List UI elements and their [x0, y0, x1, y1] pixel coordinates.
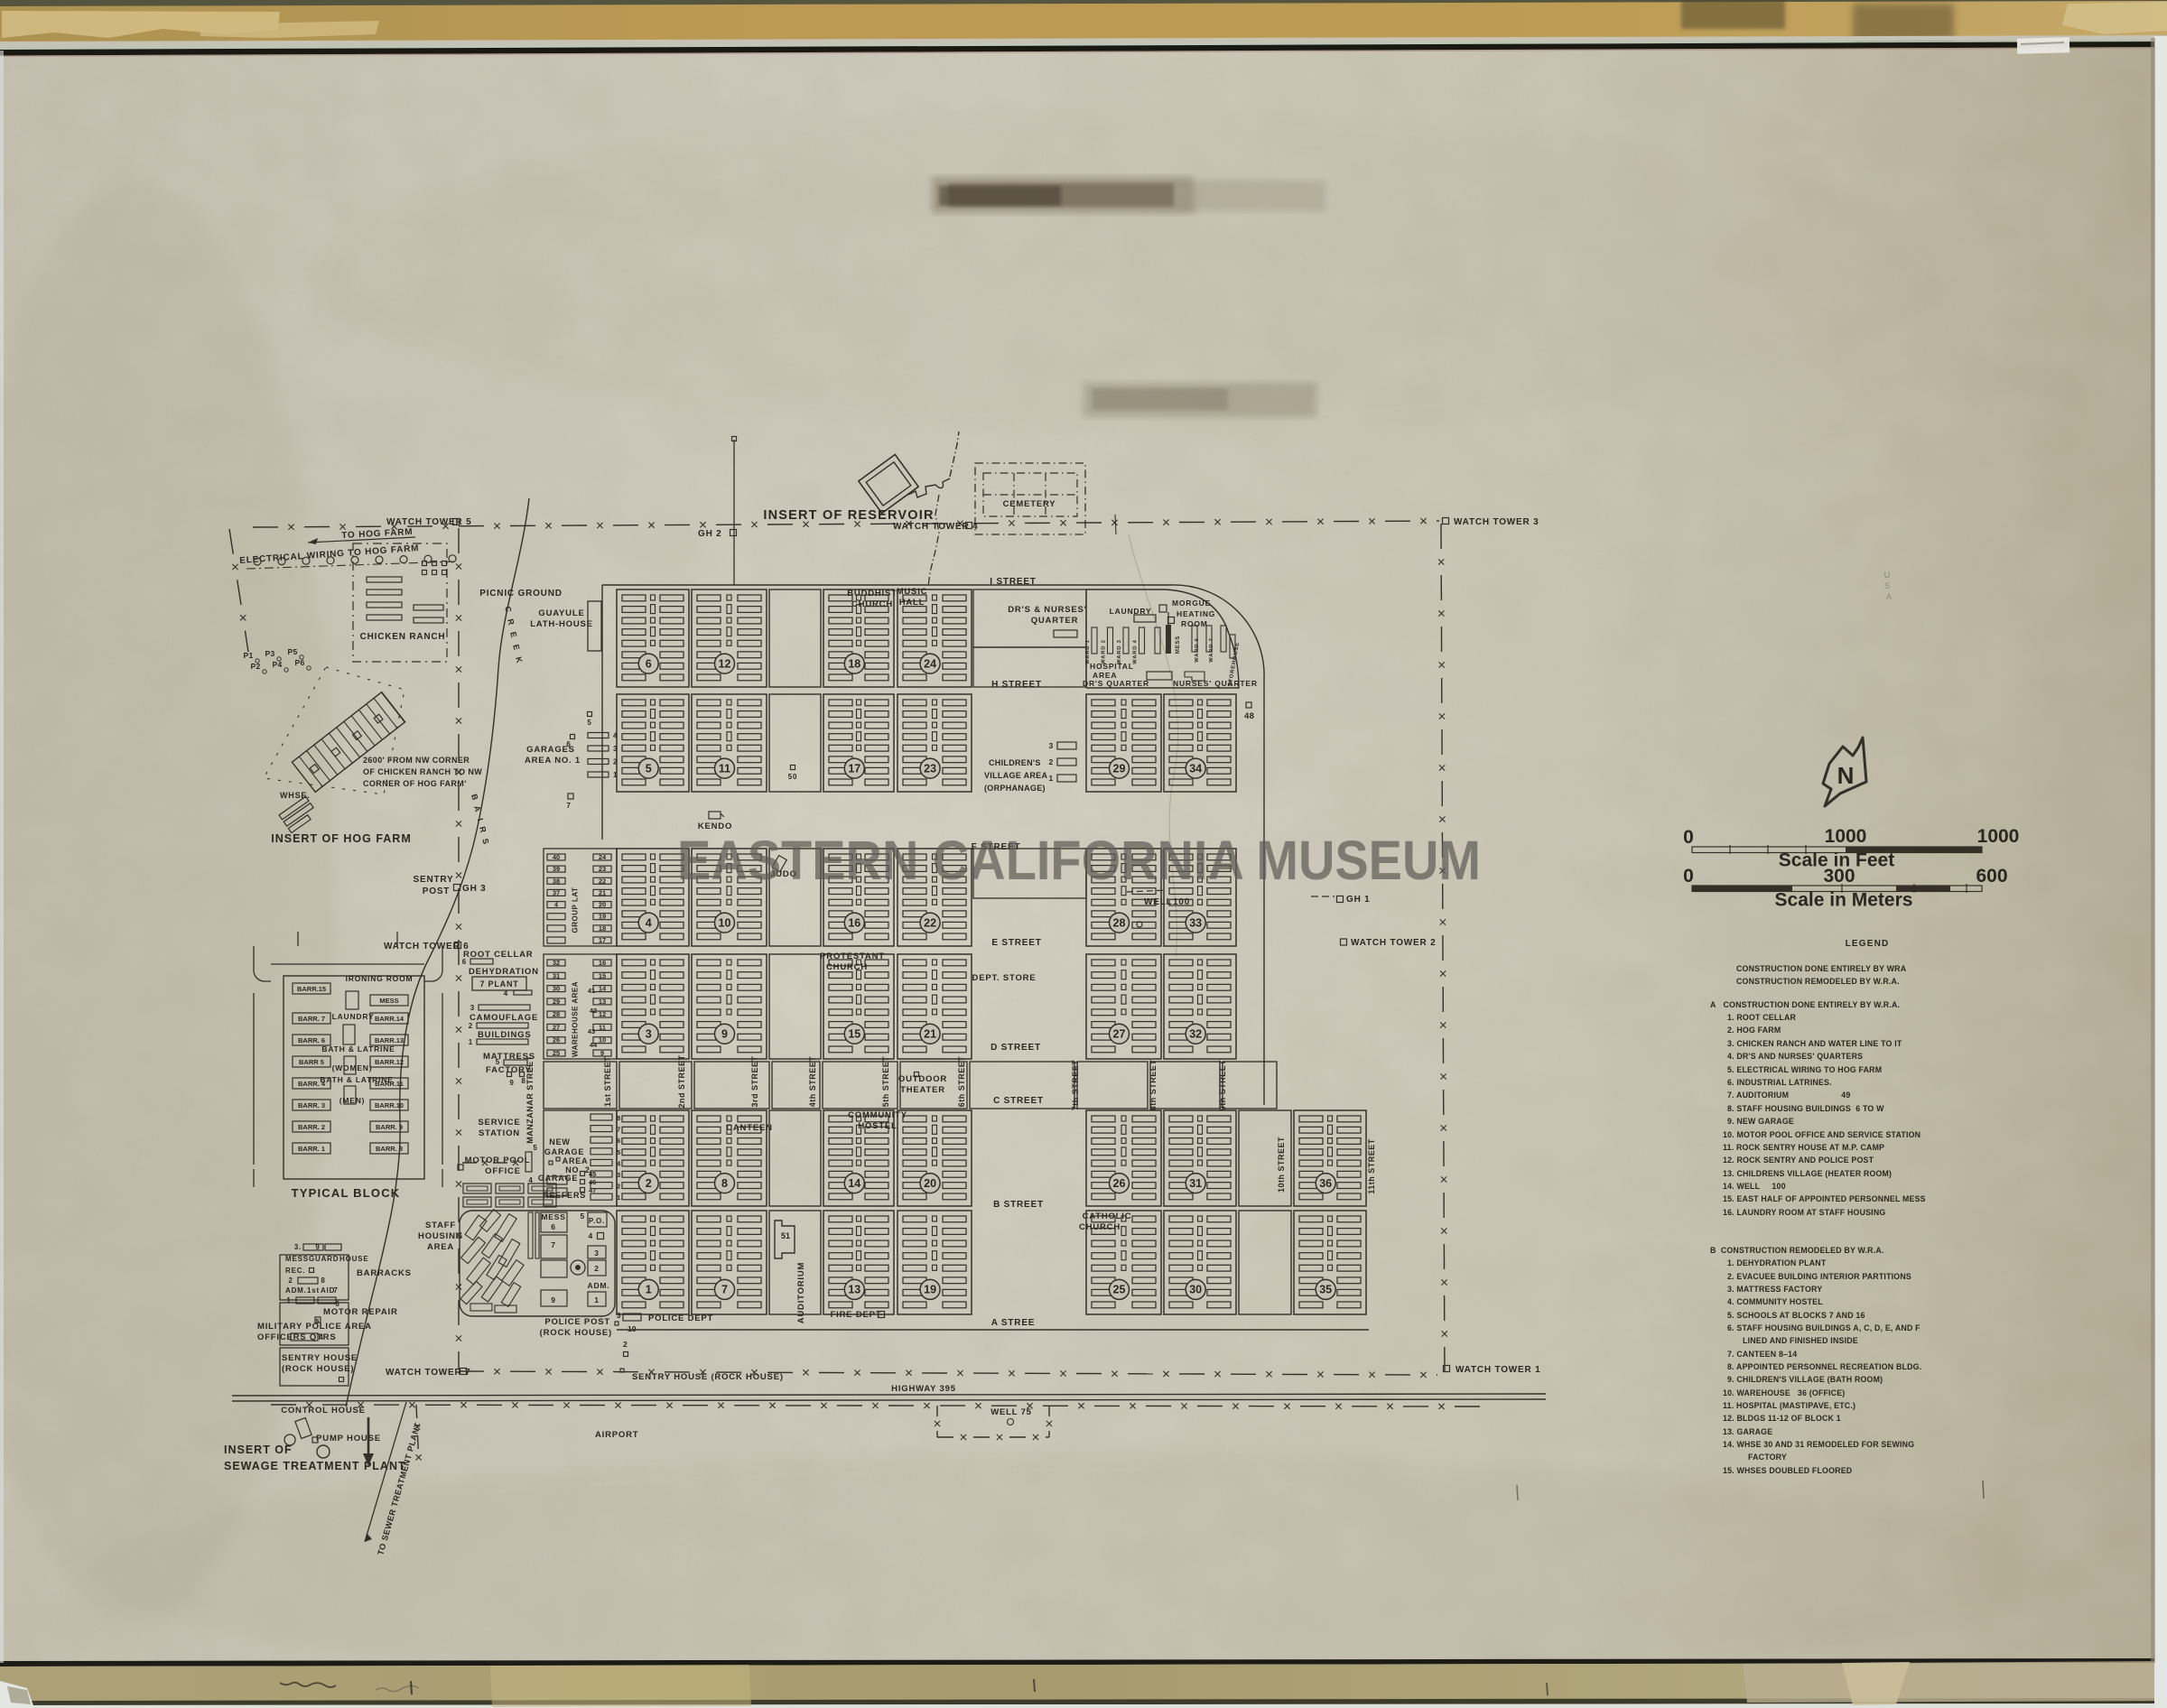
svg-text:15. EAST HALF OF APPOINTED PER: 15. EAST HALF OF APPOINTED PERSONNEL MES… — [1723, 1194, 1926, 1203]
svg-text:WATCH TOWER 6: WATCH TOWER 6 — [384, 942, 469, 951]
svg-text:HOUSE: HOUSE — [339, 1255, 368, 1263]
svg-text:WARD 1: WARD 1 — [1085, 639, 1091, 664]
svg-text:50: 50 — [788, 773, 798, 781]
svg-text:5: 5 — [580, 1211, 585, 1221]
svg-text:22: 22 — [599, 877, 606, 885]
svg-text:13: 13 — [848, 1284, 860, 1296]
svg-text:SEWAGE TREATMENT PLANT: SEWAGE TREATMENT PLANT — [224, 1460, 406, 1472]
svg-text:OF CHICKEN RANCH TO NW: OF CHICKEN RANCH TO NW — [363, 767, 482, 776]
svg-text:15. WHSES DOUBLED FLOORED: 15. WHSES DOUBLED FLOORED — [1723, 1466, 1852, 1475]
svg-text:HOUSING: HOUSING — [418, 1231, 463, 1241]
svg-text:32: 32 — [553, 959, 560, 967]
svg-text:GARAGE: GARAGE — [544, 1147, 584, 1156]
svg-text:A STREE: A STREE — [991, 1318, 1036, 1328]
svg-text:Scale in Meters: Scale in Meters — [1775, 890, 1913, 911]
svg-text:AREA NO. 1: AREA NO. 1 — [525, 756, 581, 766]
svg-text:DR'S & NURSES': DR'S & NURSES' — [1008, 605, 1087, 615]
svg-text:BARR 5: BARR 5 — [299, 1058, 324, 1066]
svg-text:12: 12 — [719, 657, 731, 670]
svg-text:7th STREET: 7th STREET — [1071, 1060, 1080, 1111]
svg-text:23: 23 — [924, 762, 936, 775]
svg-text:CHURCH: CHURCH — [826, 962, 868, 972]
svg-text:0: 0 — [1683, 866, 1694, 886]
svg-text:REEFERS: REEFERS — [543, 1191, 586, 1200]
svg-text:6. STAFF HOUSING BUILDINGS A,: 6. STAFF HOUSING BUILDINGS A, C, D, E, A… — [1727, 1323, 1921, 1332]
svg-text:CONSTRUCTION DONE ENTIRELY BY: CONSTRUCTION DONE ENTIRELY BY WRA — [1736, 964, 1907, 973]
svg-text:CHICKEN RANCH: CHICKEN RANCH — [360, 632, 446, 642]
svg-text:PROTESTANT: PROTESTANT — [820, 951, 885, 961]
svg-text:HALL: HALL — [899, 598, 925, 608]
svg-text:22: 22 — [924, 916, 936, 929]
svg-text:VILLAGE AREA: VILLAGE AREA — [984, 771, 1047, 780]
svg-text:8: 8 — [721, 1177, 728, 1190]
svg-text:P4: P4 — [273, 660, 283, 669]
svg-text:5. SCHOOLS AT BLOCKS 7 AND 16: 5. SCHOOLS AT BLOCKS 7 AND 16 — [1727, 1311, 1865, 1320]
svg-text:3.: 3. — [294, 1243, 302, 1251]
svg-text:LAUNDRY: LAUNDRY — [332, 1012, 375, 1021]
svg-text:20: 20 — [924, 1177, 936, 1190]
svg-text:WARD 4: WARD 4 — [1133, 639, 1139, 664]
svg-text:46: 46 — [589, 1178, 596, 1186]
svg-text:10: 10 — [719, 916, 731, 929]
svg-text:11th STREET: 11th STREET — [1367, 1138, 1376, 1194]
svg-text:16. LAUNDRY ROOM AT STAFF HOUS: 16. LAUNDRY ROOM AT STAFF HOUSING — [1723, 1208, 1885, 1217]
svg-text:PUMP HOUSE: PUMP HOUSE — [316, 1434, 381, 1443]
svg-text:3. MATTRESS FACTORY: 3. MATTRESS FACTORY — [1727, 1285, 1822, 1294]
svg-text:4: 4 — [319, 1333, 323, 1341]
svg-text:MORGUE: MORGUE — [1172, 599, 1211, 608]
svg-text:ADM.: ADM. — [285, 1286, 307, 1295]
svg-text:2: 2 — [623, 1340, 628, 1349]
svg-text:BUDDHIST: BUDDHIST — [847, 589, 897, 599]
svg-text:5th STREET: 5th STREET — [881, 1056, 890, 1108]
svg-text:2: 2 — [1048, 757, 1054, 766]
svg-text:E STREET: E STREET — [991, 938, 1041, 948]
svg-text:STATION: STATION — [479, 1128, 520, 1138]
svg-text:BARR. 7: BARR. 7 — [298, 1015, 325, 1023]
svg-text:1000: 1000 — [1825, 826, 1867, 847]
svg-text:1. ROOT CELLAR: 1. ROOT CELLAR — [1727, 1013, 1797, 1022]
svg-text:2: 2 — [594, 1264, 600, 1273]
svg-text:SENTRY: SENTRY — [414, 875, 454, 885]
svg-text:BARR.15: BARR.15 — [297, 985, 326, 993]
svg-text:3: 3 — [617, 1171, 620, 1179]
svg-text:1. DEHYDRATION PLANT: 1. DEHYDRATION PLANT — [1727, 1258, 1827, 1267]
svg-text:OFFICE: OFFICE — [485, 1166, 521, 1176]
svg-text:36: 36 — [1319, 1177, 1332, 1190]
svg-text:4: 4 — [504, 989, 508, 998]
svg-text:GARAGE: GARAGE — [538, 1174, 578, 1183]
svg-text:THEATER: THEATER — [900, 1085, 945, 1095]
svg-text:BARR.13: BARR.13 — [375, 1036, 404, 1044]
svg-text:TYPICAL BLOCK: TYPICAL BLOCK — [292, 1186, 401, 1200]
svg-text:7. AUDITORIUM: 7. AUDITORIUM 49 — [1727, 1091, 1850, 1100]
svg-text:BARR.10: BARR.10 — [375, 1101, 404, 1109]
svg-text:AIRPORT: AIRPORT — [595, 1430, 638, 1440]
svg-text:9: 9 — [551, 1295, 556, 1304]
svg-text:12. BLDGS 11-12 OF BLOCK 1: 12. BLDGS 11-12 OF BLOCK 1 — [1723, 1414, 1841, 1423]
svg-text:INSERT OF RESERVOIR: INSERT OF RESERVOIR — [763, 508, 934, 523]
svg-text:LINED AND FINISHED INSIDE: LINED AND FINISHED INSIDE — [1743, 1336, 1858, 1345]
svg-text:45: 45 — [589, 1170, 596, 1178]
svg-text:600: 600 — [1976, 866, 2007, 886]
svg-text:WATCH TOWER 5: WATCH TOWER 5 — [386, 517, 471, 527]
svg-text:14. WHSE 30 AND 31 REMODELED: 14. WHSE 30 AND 31 REMODELED FOR SEWING — [1723, 1440, 1914, 1449]
svg-text:9: 9 — [721, 1028, 728, 1041]
svg-text:2600' FROM NW CORNER: 2600' FROM NW CORNER — [363, 756, 470, 765]
svg-text:STAFF: STAFF — [425, 1221, 456, 1230]
svg-text:44: 44 — [590, 1041, 598, 1049]
svg-text:FACTORY: FACTORY — [1748, 1453, 1787, 1462]
svg-text:20: 20 — [599, 901, 606, 909]
svg-text:18: 18 — [599, 924, 606, 933]
svg-text:7: 7 — [333, 1286, 338, 1295]
svg-text:28: 28 — [1113, 916, 1126, 929]
svg-text:P6: P6 — [295, 658, 305, 667]
svg-text:HEATING: HEATING — [1177, 609, 1215, 618]
svg-text:LAUNDRY: LAUNDRY — [1110, 607, 1152, 616]
svg-text:19: 19 — [599, 913, 606, 921]
svg-text:25: 25 — [553, 1049, 560, 1057]
svg-text:LEGEND: LEGEND — [1846, 939, 1890, 949]
svg-text:26: 26 — [1113, 1177, 1126, 1190]
svg-text:IRONING ROOM: IRONING ROOM — [346, 974, 414, 983]
svg-text:48: 48 — [1244, 711, 1254, 721]
svg-text:51: 51 — [781, 1231, 790, 1240]
svg-text:7. CANTEEN 8–14: 7. CANTEEN 8–14 — [1727, 1350, 1797, 1359]
svg-text:18: 18 — [848, 657, 860, 670]
svg-text:D STREET: D STREET — [990, 1043, 1041, 1053]
svg-text:6: 6 — [462, 958, 467, 966]
svg-text:31: 31 — [1189, 1177, 1202, 1190]
svg-text:(ORPHANAGE): (ORPHANAGE) — [984, 784, 1046, 793]
svg-text:1: 1 — [1048, 774, 1054, 783]
svg-text:300: 300 — [1823, 866, 1855, 886]
svg-text:AUDITORIUM: AUDITORIUM — [796, 1262, 806, 1324]
svg-text:BATH & LATRINE: BATH & LATRINE — [321, 1044, 395, 1054]
svg-text:ADM.: ADM. — [588, 1281, 610, 1290]
svg-text:DR'S QUARTER: DR'S QUARTER — [1083, 679, 1149, 688]
svg-text:A: A — [1886, 592, 1892, 601]
svg-text:SENTRY HOUSE: SENTRY HOUSE — [282, 1353, 358, 1363]
svg-text:4: 4 — [588, 1231, 593, 1240]
svg-text:33: 33 — [1189, 916, 1202, 929]
svg-text:9. CHILDREN'S VILLAGE (BATH RO: 9. CHILDREN'S VILLAGE (BATH ROOM) — [1727, 1375, 1883, 1384]
svg-text:1: 1 — [594, 1295, 600, 1304]
svg-text:0: 0 — [1683, 827, 1694, 848]
svg-text:28: 28 — [553, 1010, 560, 1018]
svg-text:11. ROCK SENTRY HOUSE AT M.P.: 11. ROCK SENTRY HOUSE AT M.P. CAMP — [1723, 1143, 1884, 1152]
svg-text:B CONSTRUCTION REMODELED BY W: B CONSTRUCTION REMODELED BY W.R.A. — [1710, 1246, 1884, 1255]
svg-text:41: 41 — [588, 987, 595, 995]
svg-text:1: 1 — [617, 1193, 620, 1202]
svg-text:10. WAREHOUSE 36 (OFFICE): 10. WAREHOUSE 36 (OFFICE) — [1723, 1388, 1845, 1397]
svg-text:3: 3 — [594, 1249, 600, 1258]
svg-text:INSERT OF: INSERT OF — [224, 1443, 293, 1456]
svg-text:14. WELL 100: 14. WELL 100 — [1723, 1182, 1786, 1191]
svg-text:OUTDOOR: OUTDOOR — [898, 1074, 947, 1084]
svg-text:25: 25 — [1113, 1284, 1126, 1296]
svg-text:MOTOR REPAIR: MOTOR REPAIR — [323, 1307, 398, 1317]
svg-text:C STREET: C STREET — [993, 1096, 1044, 1106]
svg-text:BATH & LATRINE: BATH & LATRINE — [320, 1075, 393, 1084]
svg-text:2: 2 — [288, 1276, 293, 1285]
svg-text:29: 29 — [553, 998, 560, 1006]
svg-text:CHURCH: CHURCH — [1079, 1222, 1121, 1232]
svg-text:HOSPITAL: HOSPITAL — [1090, 662, 1134, 671]
svg-text:POLICE POST: POLICE POST — [544, 1317, 610, 1327]
svg-text:WATCH TOWER 4: WATCH TOWER 4 — [893, 522, 978, 532]
svg-text:P3: P3 — [265, 649, 275, 658]
svg-text:4. DR'S AND NURSES' QUARTERS: 4. DR'S AND NURSES' QUARTERS — [1727, 1052, 1863, 1061]
svg-text:AREA: AREA — [427, 1242, 454, 1252]
svg-text:8th STREET: 8th STREET — [1149, 1060, 1158, 1111]
svg-text:REC.: REC. — [285, 1267, 305, 1275]
svg-text:14: 14 — [599, 985, 607, 993]
svg-text:42: 42 — [590, 1007, 597, 1015]
svg-text:47: 47 — [589, 1186, 596, 1194]
svg-text:A CONSTRUCTION DONE ENTIRELY: A CONSTRUCTION DONE ENTIRELY BY W.R.A. — [1710, 1000, 1900, 1009]
svg-text:GH 1: GH 1 — [1346, 895, 1371, 905]
svg-text:WHSE.: WHSE. — [280, 791, 311, 800]
svg-text:8. APPOINTED PERSONNEL RECREAT: 8. APPOINTED PERSONNEL RECREATION BLDG. — [1727, 1362, 1921, 1371]
svg-text:4th STREET: 4th STREET — [808, 1056, 817, 1108]
svg-text:7 PLANT: 7 PLANT — [479, 979, 518, 989]
svg-text:6: 6 — [646, 657, 652, 670]
svg-text:DEHYDRATION: DEHYDRATION — [469, 967, 539, 977]
svg-text:WATCH TOWER 2: WATCH TOWER 2 — [1351, 938, 1436, 948]
svg-text:10. MOTOR POOL OFFICE AND SERV: 10. MOTOR POOL OFFICE AND SERVICE STATIO… — [1723, 1130, 1921, 1139]
svg-text:ROOT CELLAR: ROOT CELLAR — [463, 950, 533, 960]
svg-text:CEMETERY: CEMETERY — [1003, 499, 1056, 509]
svg-text:GH 3: GH 3 — [462, 884, 487, 894]
svg-text:GH 2: GH 2 — [698, 529, 722, 539]
svg-text:S: S — [1884, 581, 1890, 590]
svg-text:6: 6 — [566, 740, 571, 748]
svg-text:HIGHWAY 395: HIGHWAY 395 — [891, 1384, 956, 1394]
svg-text:WARD 3: WARD 3 — [1117, 639, 1122, 664]
svg-text:2: 2 — [617, 1183, 620, 1191]
svg-text:EASTERN CALIFORNIA MUSEUM: EASTERN CALIFORNIA MUSEUM — [677, 830, 1481, 891]
svg-text:3rd STREET: 3rd STREET — [750, 1055, 759, 1107]
svg-text:7: 7 — [721, 1284, 728, 1296]
svg-text:MESS: MESS — [1176, 636, 1181, 654]
svg-text:INSERT OF HOG FARM: INSERT OF HOG FARM — [271, 832, 412, 845]
svg-text:23: 23 — [599, 865, 606, 873]
svg-text:GROUP LAT: GROUP LAT — [572, 887, 580, 933]
svg-text:34: 34 — [1189, 762, 1202, 775]
svg-text:9. NEW GARAGE: 9. NEW GARAGE — [1727, 1117, 1794, 1126]
svg-text:5: 5 — [587, 719, 591, 727]
svg-text:10: 10 — [599, 1036, 606, 1044]
svg-text:BARR.12: BARR.12 — [375, 1058, 404, 1066]
svg-text:2. EVACUEE BUILDING INTERIOR P: 2. EVACUEE BUILDING INTERIOR PARTITIONS — [1727, 1272, 1911, 1281]
svg-text:4: 4 — [646, 916, 652, 929]
svg-text:30: 30 — [1189, 1284, 1202, 1296]
svg-text:HOSTEL: HOSTEL — [858, 1121, 897, 1131]
svg-text:12. ROCK SENTRY AND POLICE POS: 12. ROCK SENTRY AND POLICE POST — [1723, 1156, 1874, 1165]
svg-text:WAREHOUSE AREA: WAREHOUSE AREA — [572, 981, 580, 1057]
svg-text:AREA: AREA — [563, 1156, 589, 1165]
svg-text:N: N — [1837, 762, 1855, 789]
svg-text:16: 16 — [848, 916, 860, 929]
svg-text:24: 24 — [924, 657, 936, 670]
svg-text:GUAYULE: GUAYULE — [538, 608, 584, 618]
svg-text:4. COMMUNITY HOSTEL: 4. COMMUNITY HOSTEL — [1727, 1297, 1823, 1306]
svg-text:39: 39 — [553, 865, 560, 873]
svg-text:24: 24 — [599, 853, 607, 861]
svg-text:P2: P2 — [251, 662, 261, 671]
svg-text:NEW: NEW — [549, 1137, 570, 1146]
svg-text:7: 7 — [617, 1126, 620, 1134]
svg-text:MESS: MESS — [285, 1255, 309, 1263]
svg-text:15: 15 — [848, 1028, 860, 1041]
svg-text:43: 43 — [588, 1027, 595, 1035]
svg-text:POLICE DEPT: POLICE DEPT — [648, 1313, 713, 1323]
svg-text:13. CHILDRENS VILLAGE (HEATER: 13. CHILDRENS VILLAGE (HEATER ROOM) — [1723, 1169, 1892, 1178]
svg-text:ROOM: ROOM — [1181, 619, 1208, 628]
svg-text:SENTRY HOUSE (ROCK HOUSE): SENTRY HOUSE (ROCK HOUSE) — [632, 1372, 784, 1382]
svg-text:8: 8 — [521, 1077, 525, 1085]
svg-text:CORNER OF HOG FARM': CORNER OF HOG FARM' — [363, 779, 467, 788]
svg-text:BARR. 6: BARR. 6 — [298, 1036, 325, 1044]
svg-text:17: 17 — [599, 936, 606, 944]
svg-text:WARD 7: WARD 7 — [1209, 637, 1214, 662]
svg-text:MUSIC: MUSIC — [897, 587, 928, 597]
svg-text:(MEN): (MEN) — [339, 1096, 366, 1105]
svg-text:1st STREET: 1st STREET — [603, 1056, 612, 1107]
svg-text:13. GARAGE: 13. GARAGE — [1723, 1427, 1772, 1436]
svg-text:CONSTRUCTION REMODELED BY W.R.: CONSTRUCTION REMODELED BY W.R.A. — [1736, 977, 1900, 986]
svg-text:BARR. 9: BARR. 9 — [376, 1123, 403, 1131]
svg-text:BARRACKS: BARRACKS — [357, 1268, 412, 1278]
svg-text:8. STAFF HOUSING BUILDINGS 6: 8. STAFF HOUSING BUILDINGS 6 TO W — [1727, 1104, 1884, 1113]
svg-text:1: 1 — [469, 1038, 473, 1046]
svg-text:7: 7 — [551, 1240, 556, 1249]
svg-text:DEPT. STORE: DEPT. STORE — [972, 973, 1037, 983]
svg-text:5: 5 — [617, 1148, 620, 1156]
svg-text:10th STREET: 10th STREET — [1277, 1137, 1286, 1193]
svg-text:29: 29 — [1113, 762, 1126, 775]
svg-text:FIRE DEPT: FIRE DEPT — [831, 1310, 882, 1320]
svg-text:BUILDINGS: BUILDINGS — [478, 1030, 531, 1040]
svg-text:27: 27 — [553, 1023, 560, 1031]
svg-text:6: 6 — [551, 1222, 556, 1231]
svg-text:WARD 6: WARD 6 — [1195, 637, 1200, 662]
svg-text:WELL 75: WELL 75 — [990, 1407, 1032, 1417]
svg-text:9: 9 — [600, 1049, 604, 1057]
svg-text:16: 16 — [599, 959, 606, 967]
svg-text:MOTOR POOL: MOTOR POOL — [465, 1156, 531, 1165]
svg-text:(ROCK HOUSE): (ROCK HOUSE) — [282, 1364, 354, 1374]
svg-text:3: 3 — [646, 1028, 652, 1041]
svg-text:10: 10 — [628, 1324, 637, 1333]
svg-text:CAMOUFLAGE: CAMOUFLAGE — [470, 1013, 538, 1023]
svg-text:LATH-HOUSE: LATH-HOUSE — [530, 619, 593, 629]
svg-text:WARD 2: WARD 2 — [1102, 639, 1107, 664]
svg-text:27: 27 — [1113, 1028, 1126, 1041]
svg-text:P1: P1 — [244, 651, 254, 660]
svg-text:GUARD: GUARD — [309, 1255, 339, 1263]
svg-text:H STREET: H STREET — [991, 680, 1042, 690]
svg-text:32: 32 — [1189, 1028, 1202, 1041]
svg-text:6th STREET: 6th STREET — [957, 1056, 966, 1108]
svg-text:37: 37 — [553, 888, 560, 896]
svg-text:5. ELECTRICAL WIRING TO HOG FA: 5. ELECTRICAL WIRING TO HOG FARM — [1727, 1065, 1882, 1074]
svg-text:BARR. 2: BARR. 2 — [298, 1123, 325, 1131]
svg-text:BARR. 8: BARR. 8 — [376, 1145, 403, 1153]
svg-text:15: 15 — [599, 971, 606, 979]
svg-text:8: 8 — [617, 1114, 620, 1122]
svg-text:11. HOSPITAL (MASTIPAVE, ETC.): 11. HOSPITAL (MASTIPAVE, ETC.) — [1723, 1401, 1855, 1410]
svg-text:2. HOG FARM: 2. HOG FARM — [1727, 1026, 1781, 1035]
svg-text:MESS: MESS — [379, 997, 398, 1005]
svg-text:9: 9 — [509, 1079, 514, 1087]
svg-text:21: 21 — [924, 1028, 936, 1041]
svg-text:13: 13 — [599, 998, 606, 1006]
svg-text:19: 19 — [924, 1284, 936, 1296]
svg-text:(WOMEN): (WOMEN) — [332, 1063, 373, 1072]
svg-text:6. INDUSTRIAL LATRINES.: 6. INDUSTRIAL LATRINES. — [1727, 1078, 1832, 1087]
svg-text:SERVICE: SERVICE — [478, 1118, 520, 1128]
svg-text:CHURCH: CHURCH — [851, 599, 893, 609]
svg-text:1000: 1000 — [1977, 826, 2020, 847]
svg-text:MILITARY POLICE AREA: MILITARY POLICE AREA — [257, 1322, 372, 1332]
svg-text:3: 3 — [617, 1312, 621, 1320]
svg-text:40: 40 — [553, 853, 560, 861]
svg-text:3. CHICKEN RANCH AND WATER LIN: 3. CHICKEN RANCH AND WATER LINE TO IT — [1727, 1039, 1902, 1048]
svg-text:17: 17 — [848, 762, 860, 775]
svg-text:6: 6 — [617, 1137, 620, 1145]
svg-text:CHILDREN'S: CHILDREN'S — [989, 758, 1041, 767]
svg-text:3: 3 — [1048, 741, 1054, 750]
svg-text:1: 1 — [286, 1296, 291, 1304]
svg-text:CATHOLIC: CATHOLIC — [1083, 1211, 1132, 1221]
svg-text:COMMUNITY: COMMUNITY — [848, 1110, 907, 1120]
svg-text:P5: P5 — [288, 647, 298, 656]
svg-text:POST: POST — [423, 886, 450, 896]
svg-text:1: 1 — [646, 1284, 652, 1296]
svg-text:2: 2 — [646, 1177, 652, 1190]
svg-text:WATCH TOWER 7: WATCH TOWER 7 — [386, 1368, 470, 1378]
svg-text:21: 21 — [599, 888, 606, 896]
svg-text:CONTROL HOUSE: CONTROL HOUSE — [281, 1406, 366, 1416]
svg-text:5: 5 — [533, 1144, 537, 1152]
svg-text:BARR. 1: BARR. 1 — [298, 1145, 325, 1153]
svg-text:2: 2 — [469, 1022, 473, 1030]
svg-text:B STREET: B STREET — [993, 1200, 1044, 1210]
svg-text:9th STREET: 9th STREET — [1218, 1060, 1227, 1111]
svg-text:NURSES' QUARTER: NURSES' QUARTER — [1173, 679, 1258, 688]
svg-text:2nd STREET: 2nd STREET — [677, 1054, 686, 1108]
svg-text:11: 11 — [719, 762, 730, 775]
svg-text:12: 12 — [599, 1010, 606, 1018]
svg-text:(ROCK HOUSE): (ROCK HOUSE) — [540, 1328, 612, 1338]
svg-text:P.O.: P.O. — [589, 1217, 605, 1225]
svg-text:1st: 1st — [307, 1286, 320, 1295]
svg-text:38: 38 — [553, 877, 560, 885]
svg-text:QUARTER: QUARTER — [1031, 616, 1079, 626]
svg-text:5: 5 — [646, 762, 652, 775]
svg-text:7: 7 — [566, 802, 571, 810]
svg-text:CANTEEN: CANTEEN — [726, 1123, 773, 1133]
svg-text:3: 3 — [470, 1004, 475, 1012]
svg-text:U: U — [1884, 571, 1891, 580]
svg-text:35: 35 — [1319, 1284, 1332, 1296]
svg-text:30: 30 — [553, 985, 560, 993]
svg-text:8: 8 — [321, 1276, 325, 1285]
svg-text:WATCH TOWER 1: WATCH TOWER 1 — [1456, 1365, 1540, 1375]
